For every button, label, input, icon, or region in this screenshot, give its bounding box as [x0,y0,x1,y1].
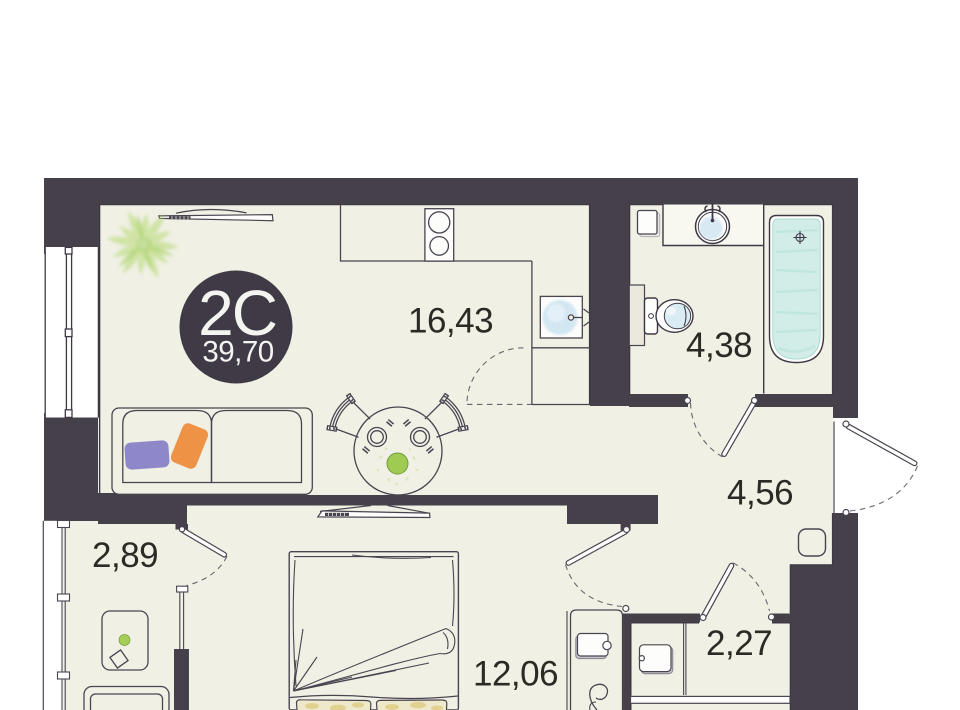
svg-text:4,38: 4,38 [686,326,752,365]
svg-text:2,89: 2,89 [92,536,158,575]
svg-text:4,56: 4,56 [727,474,793,513]
svg-text:2,27: 2,27 [706,624,772,663]
svg-text:12,06: 12,06 [473,655,558,694]
svg-text:39,70: 39,70 [202,336,273,369]
svg-text:16,43: 16,43 [408,302,493,341]
